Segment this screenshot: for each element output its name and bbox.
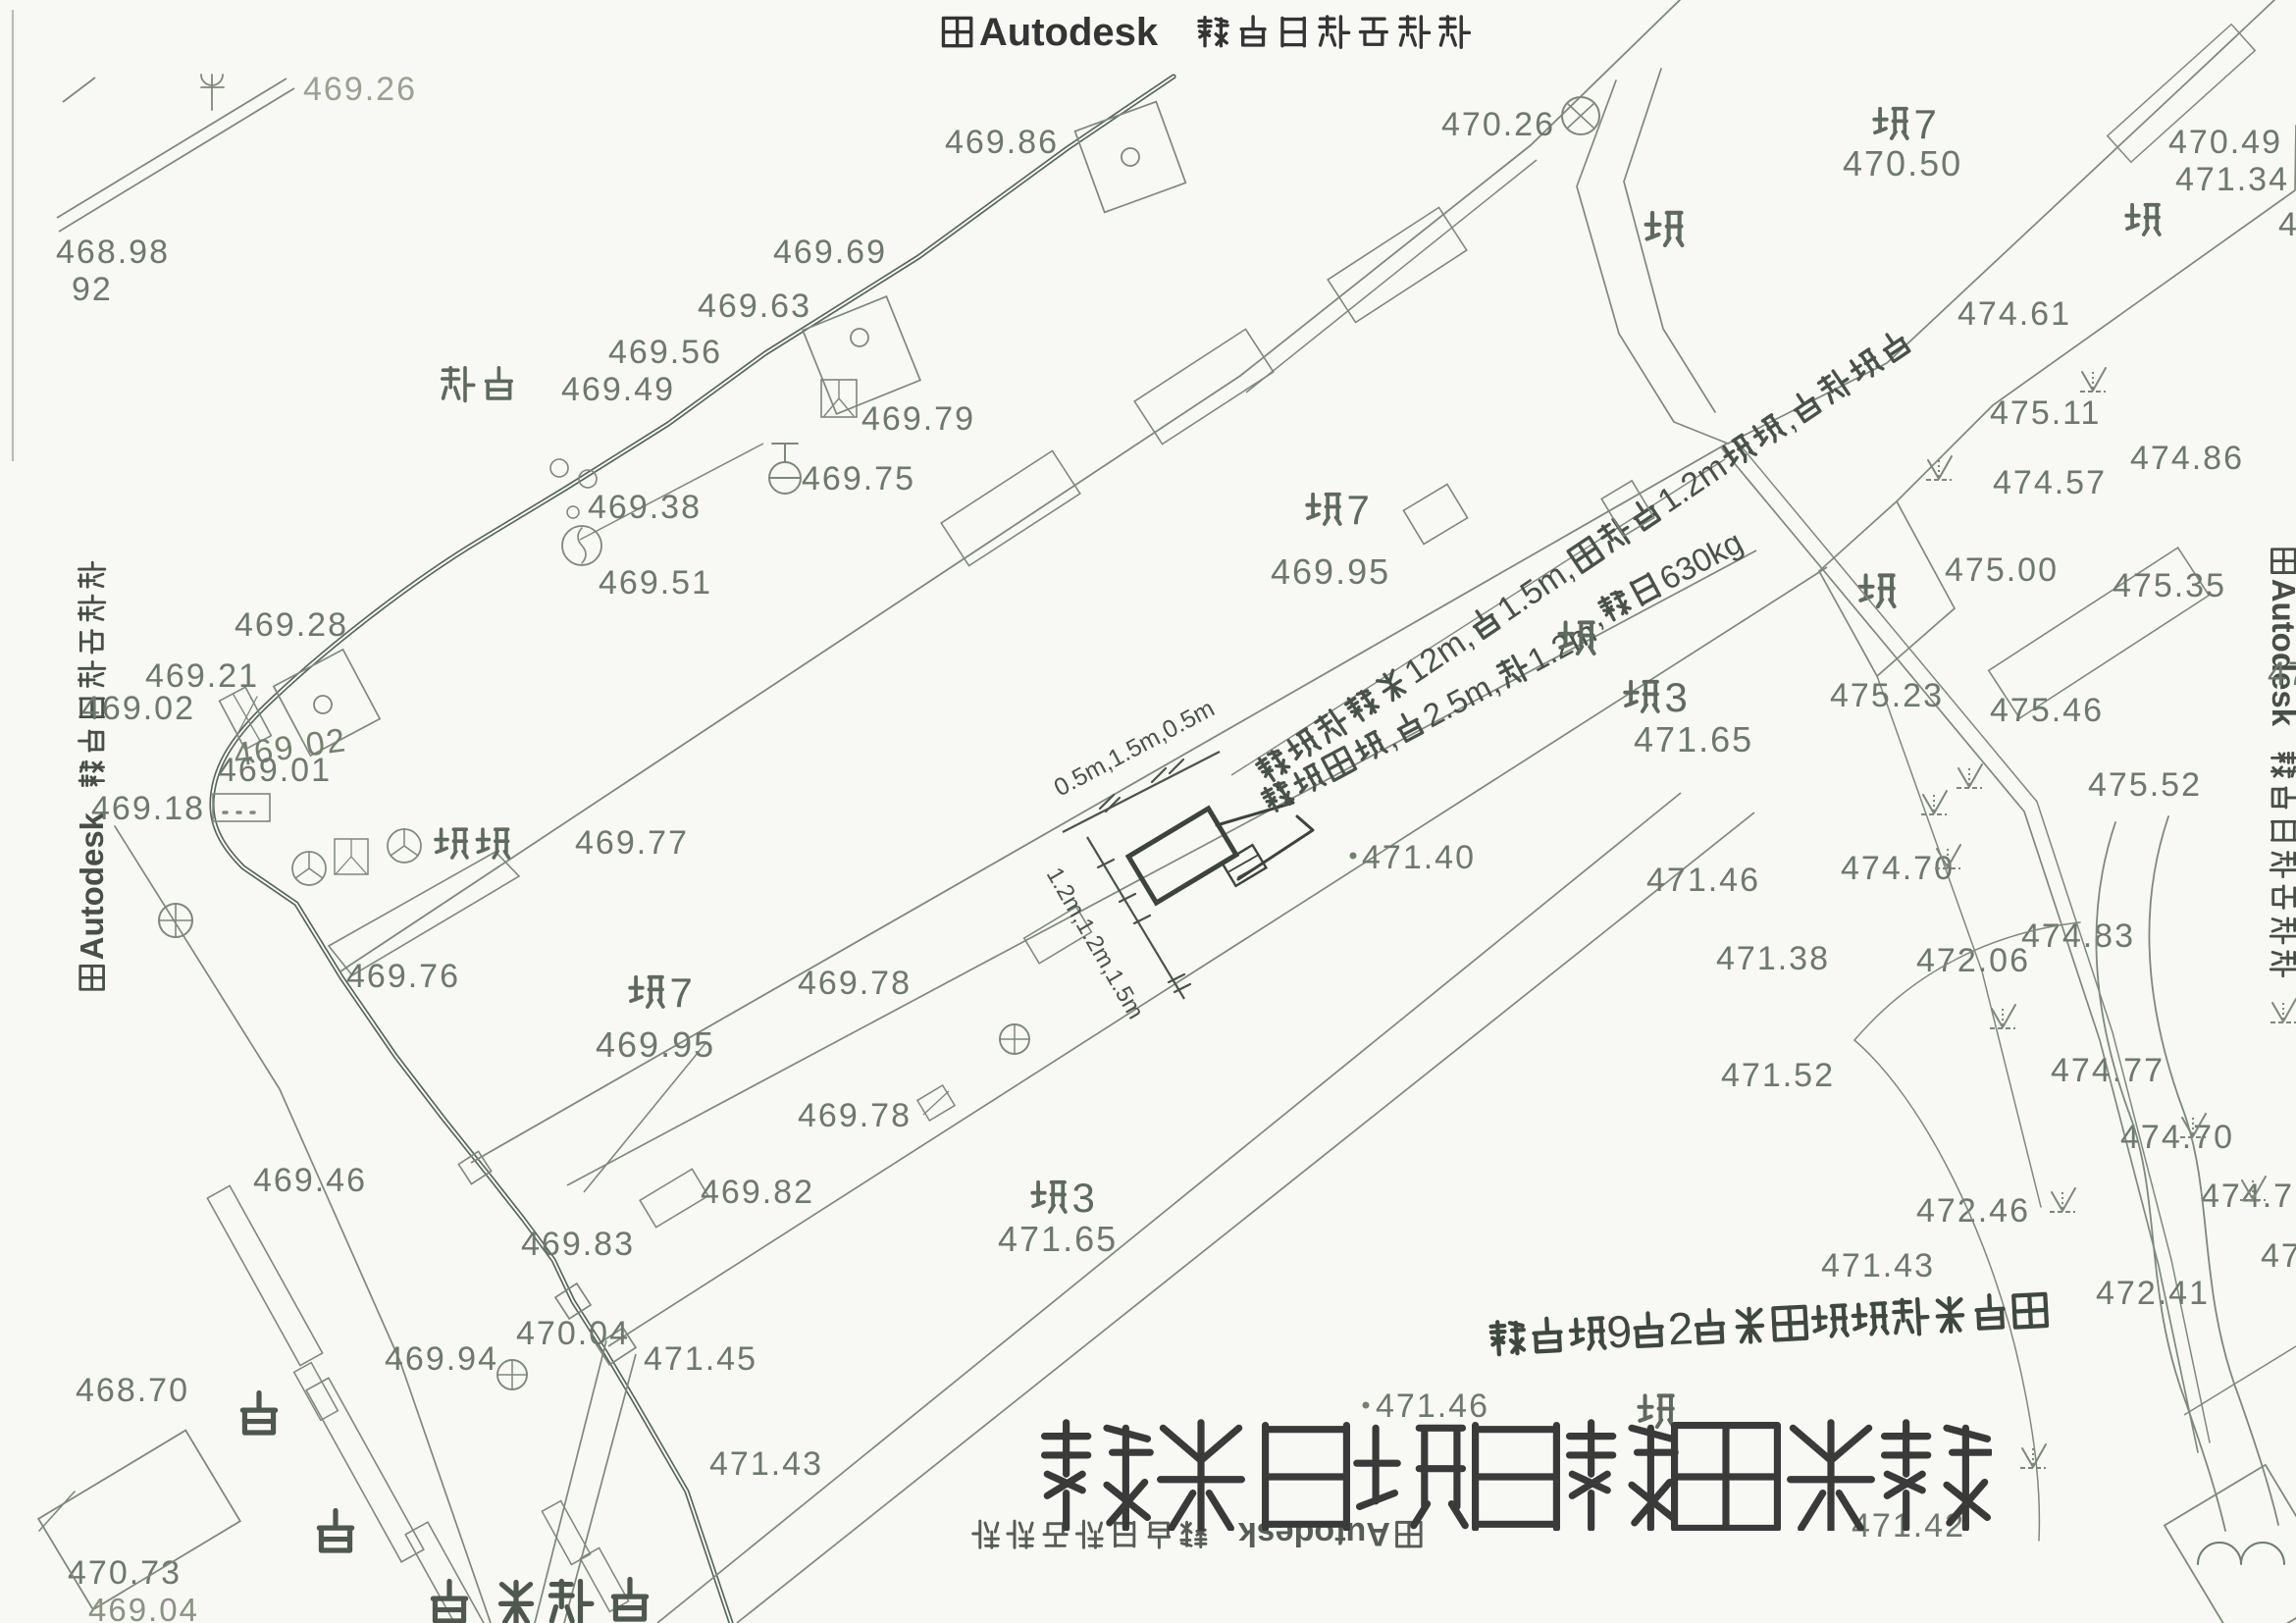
svg-text:475.35: 475.35 <box>2113 567 2226 604</box>
svg-text:Autodesk: Autodesk <box>1238 1515 1390 1552</box>
svg-text:469.95: 469.95 <box>596 1024 715 1065</box>
svg-text:471.43: 471.43 <box>709 1445 823 1483</box>
svg-text:469.77: 469.77 <box>575 824 689 862</box>
svg-text:469.02: 469.02 <box>81 690 195 727</box>
svg-text:469.49: 469.49 <box>561 371 675 408</box>
svg-text:Autodesk: Autodesk <box>74 811 110 960</box>
svg-text:475.23: 475.23 <box>1830 677 1944 714</box>
svg-text:474.77: 474.77 <box>2051 1052 2165 1089</box>
svg-text:469.76: 469.76 <box>346 958 460 995</box>
svg-text:474.7: 474.7 <box>2201 1178 2294 1215</box>
svg-text:471.65: 471.65 <box>998 1219 1118 1259</box>
svg-text:469.38: 469.38 <box>588 489 702 526</box>
svg-text:469.04: 469.04 <box>88 1592 199 1623</box>
svg-text:471.52: 471.52 <box>1721 1057 1835 1094</box>
svg-text:470.73: 470.73 <box>68 1554 182 1592</box>
svg-text:469.78: 469.78 <box>798 1097 912 1134</box>
svg-text:474.57: 474.57 <box>1993 464 2107 501</box>
svg-text:468.70: 468.70 <box>76 1372 189 1409</box>
svg-text:472.41: 472.41 <box>2096 1275 2210 1312</box>
svg-text:472: 472 <box>2261 1237 2296 1275</box>
svg-text:3: 3 <box>1072 1175 1095 1221</box>
svg-text:469.63: 469.63 <box>698 288 811 325</box>
svg-text:470.26: 470.26 <box>1441 106 1555 143</box>
svg-text:475.11: 475.11 <box>1990 394 2101 432</box>
svg-text:471.46: 471.46 <box>1646 862 1760 899</box>
svg-text:469.69: 469.69 <box>773 234 887 271</box>
svg-text:469.56: 469.56 <box>608 334 722 371</box>
svg-text:471.40: 471.40 <box>1362 839 1476 876</box>
svg-text:474.61: 474.61 <box>1957 295 2071 333</box>
svg-text:469.94: 469.94 <box>385 1340 498 1378</box>
svg-text:Autodesk: Autodesk <box>979 11 1159 54</box>
svg-text:474.86: 474.86 <box>2130 440 2244 477</box>
svg-text:472.46: 472.46 <box>1916 1192 2030 1230</box>
svg-text:475.00: 475.00 <box>1945 551 2059 589</box>
svg-text:469.26: 469.26 <box>303 71 417 108</box>
svg-text:475.46: 475.46 <box>1990 692 2104 729</box>
svg-text:469.83: 469.83 <box>521 1226 635 1263</box>
svg-text:468.98: 468.98 <box>56 234 170 271</box>
svg-text:7: 7 <box>670 969 693 1016</box>
svg-text:471.45: 471.45 <box>644 1340 757 1378</box>
svg-text:469.82: 469.82 <box>701 1174 814 1211</box>
svg-text:470.49: 470.49 <box>2168 124 2282 161</box>
svg-text:471.65: 471.65 <box>1634 719 1753 759</box>
svg-text:3: 3 <box>1665 674 1688 720</box>
svg-text:469.75: 469.75 <box>802 460 915 497</box>
svg-text:47: 47 <box>2278 206 2296 243</box>
svg-text:9: 9 <box>1605 1305 1633 1357</box>
svg-text:7: 7 <box>1914 101 1937 147</box>
svg-text:469.51: 469.51 <box>599 564 712 602</box>
svg-text:7: 7 <box>1347 487 1370 533</box>
svg-text:475.52: 475.52 <box>2088 766 2202 804</box>
svg-text:470.50: 470.50 <box>1843 143 1962 183</box>
svg-text:469.79: 469.79 <box>861 400 975 438</box>
svg-text:469.18: 469.18 <box>91 790 205 827</box>
svg-text:471.38: 471.38 <box>1716 940 1830 977</box>
svg-text:469.46: 469.46 <box>253 1162 367 1199</box>
svg-text:469.78: 469.78 <box>798 965 912 1002</box>
svg-text:92: 92 <box>72 271 113 308</box>
svg-text:471.43: 471.43 <box>1821 1247 1935 1284</box>
svg-text:469.01: 469.01 <box>218 752 332 789</box>
svg-text:Autodesk: Autodesk <box>2266 579 2296 727</box>
svg-text:470.04: 470.04 <box>516 1315 630 1352</box>
svg-text:475: 475 <box>2268 655 2296 693</box>
svg-text:2: 2 <box>1667 1302 1695 1354</box>
svg-text:469.95: 469.95 <box>1271 551 1390 592</box>
svg-text:471.34: 471.34 <box>2175 161 2289 198</box>
svg-text:469.86: 469.86 <box>945 124 1059 161</box>
svg-text:472.06: 472.06 <box>1916 942 2030 979</box>
svg-text:471.46: 471.46 <box>1376 1387 1489 1425</box>
svg-text:469.28: 469.28 <box>235 606 348 644</box>
